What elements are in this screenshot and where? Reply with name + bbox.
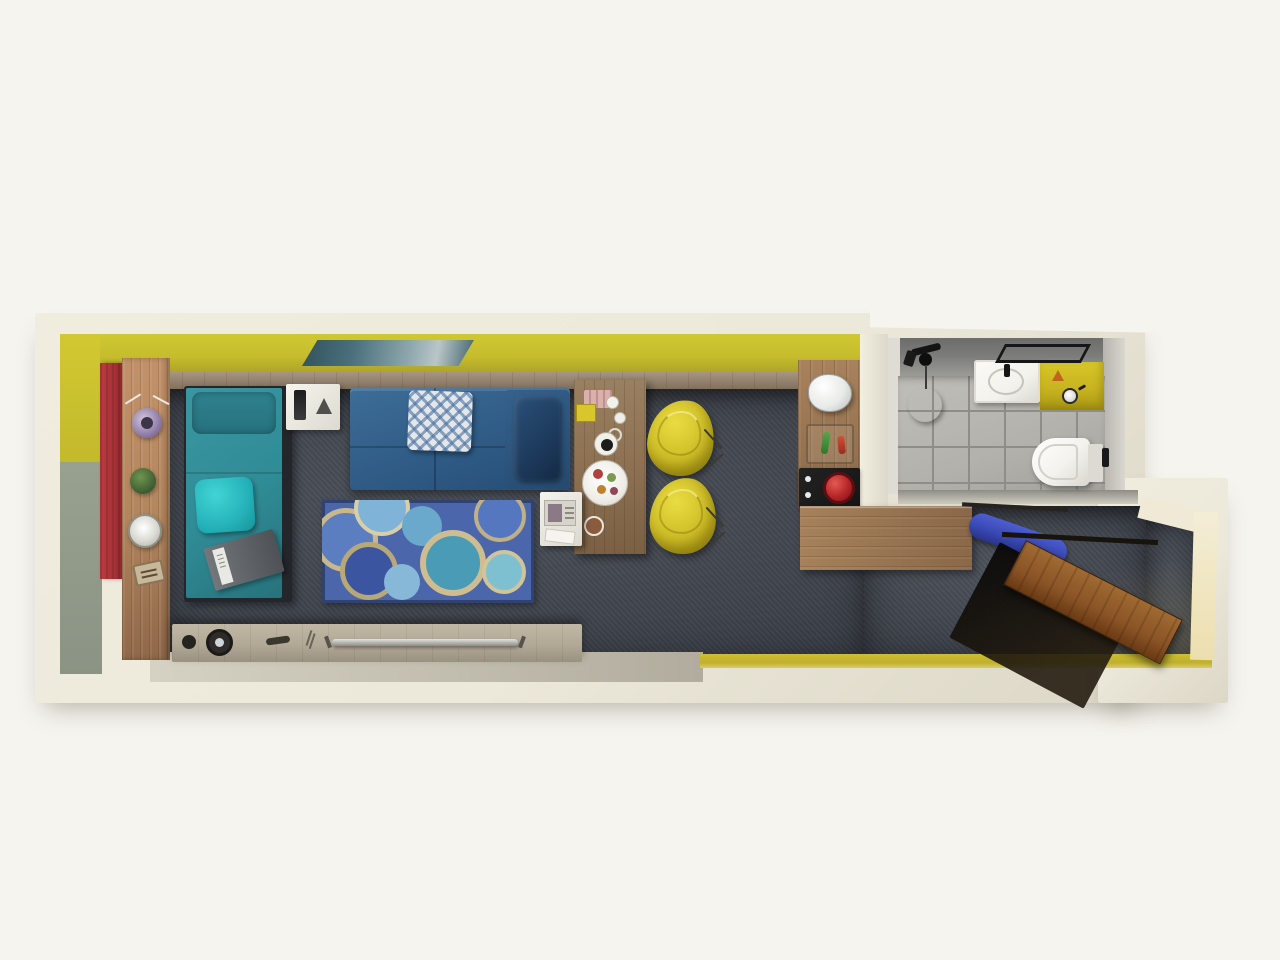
chair-seat-icon (655, 408, 704, 459)
cup-coffee-icon (601, 439, 613, 451)
black-white-cup-icon (594, 432, 618, 456)
white-nightstand (286, 384, 340, 430)
green-bottle-icon (821, 432, 831, 455)
floorplan-stage (0, 0, 1280, 960)
cabinet-handle-icon (266, 635, 291, 645)
toilet-seat-icon (1038, 444, 1078, 480)
top-wall-yellow (100, 334, 864, 374)
vase-mouth-icon (141, 417, 153, 429)
l-shaped-counter (800, 506, 972, 570)
book-text-icon (217, 554, 223, 557)
rug-circle-icon (384, 564, 420, 600)
desk-lamp (294, 390, 306, 420)
drawer-knob-icon (182, 635, 196, 649)
navy-cushion (514, 396, 560, 480)
rug-circle-icon (420, 530, 486, 596)
shower-hose-icon (925, 365, 927, 389)
speaker (206, 629, 233, 656)
teal-pillow (192, 392, 276, 434)
food-item-icon (610, 487, 618, 495)
electric-kettle (808, 374, 852, 412)
paper-sheet-icon (544, 528, 575, 545)
warning-card-icon (1052, 370, 1064, 381)
seascape-wall-art (302, 340, 474, 366)
wash-basin (974, 360, 1040, 403)
circle-pattern-rug (322, 500, 534, 603)
wall-shelf-strip (122, 358, 170, 660)
rail-hook-icon (518, 636, 526, 649)
turquoise-cushion (194, 476, 256, 534)
yellow-floor-strip (700, 654, 1212, 668)
book-spine-icon (212, 547, 233, 585)
metal-rail (332, 639, 518, 646)
condiment-tray (806, 424, 854, 464)
potted-plant (130, 468, 156, 494)
wall-hung-toilet (1032, 438, 1090, 486)
flower-vase (132, 408, 162, 438)
food-item-icon (597, 485, 606, 494)
white-cup-icon (606, 396, 619, 409)
shower-mixer-icon (903, 350, 917, 367)
yellow-notepad-icon (576, 404, 596, 422)
lamp-sketch-icon (316, 398, 332, 414)
food-item-icon (607, 473, 616, 482)
door-handle (1102, 448, 1109, 467)
yellow-vanity-counter (1040, 362, 1104, 410)
mattress-seam-icon (186, 472, 282, 474)
food-item-icon (593, 469, 603, 479)
black-cooktop (799, 468, 860, 508)
twig-decor-icon (306, 630, 313, 646)
shower-stool (908, 388, 942, 422)
tray-items-icon (141, 568, 157, 573)
wooden-desk (574, 380, 646, 554)
roofline-step (870, 299, 1160, 333)
rug-circle-icon (474, 500, 526, 542)
cooktop-knob-icon (805, 492, 811, 498)
magazine-photo-icon (548, 504, 562, 522)
kitchen-divider-wall (860, 334, 888, 508)
towel-rail (995, 344, 1091, 363)
espresso-cup-icon (584, 516, 604, 536)
bathroom-bottom-shadow (898, 490, 1138, 504)
shower-set (903, 344, 947, 390)
basin-faucet-icon (1004, 364, 1010, 377)
jar-handle-icon (1078, 384, 1086, 391)
rail-hook-icon (324, 636, 332, 649)
toiletries-jar (1062, 388, 1078, 404)
speaker-cone-icon (215, 638, 224, 647)
red-curtain-panel (100, 363, 122, 579)
chair-seat-icon (658, 487, 704, 535)
white-flower-bowl (128, 514, 162, 548)
cooktop-knob-icon (805, 476, 811, 482)
white-cup-icon (614, 412, 626, 424)
bathroom-right-wall-face (1103, 338, 1125, 494)
left-wall-olive (60, 462, 102, 674)
breakfast-plate (582, 460, 628, 506)
diamond-pattern-pillow (407, 390, 473, 452)
magazine (544, 500, 576, 526)
red-saucepan (823, 472, 855, 504)
media-sideboard (172, 624, 582, 662)
magazine-text-icon (565, 507, 574, 509)
white-side-table (540, 492, 582, 546)
rug-circle-icon (482, 550, 526, 594)
entry-right-wall-face (1190, 512, 1218, 661)
red-bottle-icon (837, 436, 846, 455)
left-wall-yellow (60, 334, 102, 464)
toilet-tank-plate (1088, 444, 1103, 482)
